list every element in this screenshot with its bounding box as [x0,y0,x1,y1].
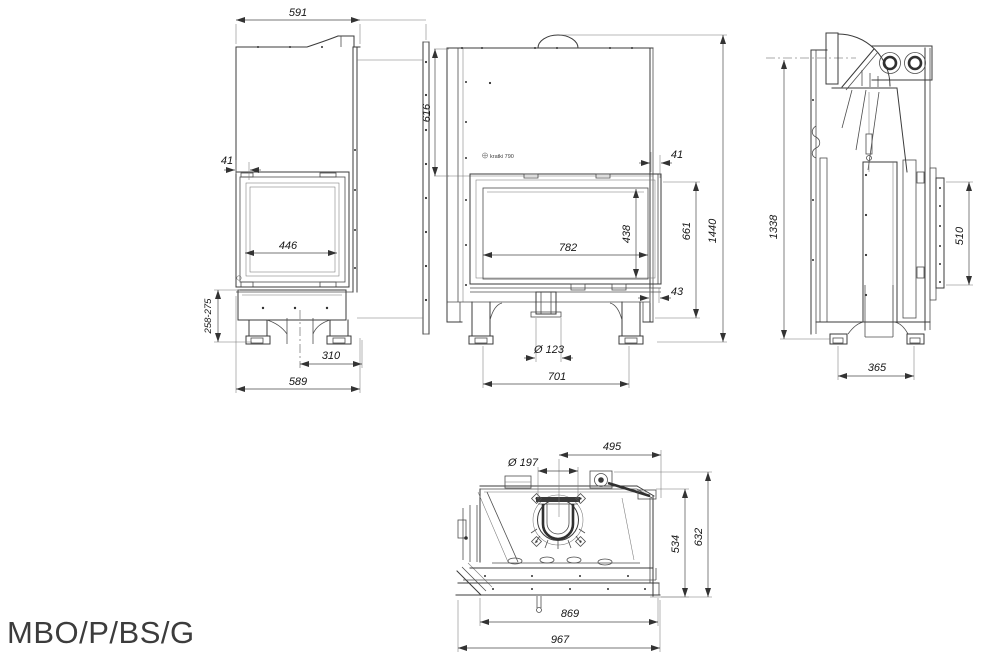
door-edge [930,168,936,300]
view-right-side: 1338 510 365 [766,33,973,380]
dim-left-depth-top: 591 [289,7,307,19]
flue-outlet [531,459,585,549]
view-left-side: 591 41 446 258-275 310 589 [203,7,429,393]
drawing-canvas: 591 41 446 258-275 310 589 [0,0,999,666]
dim-base-height-range: 258-275 [203,298,214,335]
dim-total-height: 1440 [707,218,719,243]
door-handle-pin [537,596,542,613]
dim-total-width: 967 [551,634,570,646]
view-front: kratki 790 [421,35,727,388]
dim-air-inlet-diameter: Ø 123 [533,344,565,356]
model-title: MBO/P/BS/G [7,615,195,651]
dim-flue-offset: 495 [603,441,622,453]
dim-total-depth: 632 [693,528,705,546]
dim-left-frame-offset: 41 [221,155,233,167]
top-view-dimensions: 495 Ø 197 534 632 869 967 [458,441,712,652]
view-top: 495 Ø 197 534 632 869 967 [456,441,712,652]
flue-dome [538,35,578,48]
dim-body-width: 869 [561,608,579,620]
dim-handle-bar-length: 510 [954,226,966,245]
top-view-body [456,459,660,613]
dim-hood-height: 616 [421,103,433,122]
dim-flue-axis-height: 1338 [768,214,780,239]
left-view-body [236,36,429,334]
damper-lever [590,471,656,499]
dim-inlet-offset: 310 [322,350,341,362]
side-band-latch [458,505,470,562]
technical-drawing: 591 41 446 258-275 310 589 [0,0,999,666]
damper-cable [866,92,872,172]
dim-left-depth-bottom: 589 [289,376,307,388]
air-inlet-pipe [531,292,561,317]
front-view-dimensions: 616 41 782 438 661 1440 43 [421,35,727,388]
dim-flue-diameter: Ø 197 [507,457,539,469]
dim-feet-spacing-right: 365 [868,362,887,374]
right-view-body [766,33,944,334]
dim-glass-width: 782 [559,242,577,254]
convection-outlets [872,46,932,80]
handle-bar [936,178,944,288]
side-glass-door [236,172,353,292]
brand-logo: kratki 790 [482,153,513,160]
dim-glass-height: 438 [621,224,633,243]
brand-logo-label: kratki 790 [490,154,514,160]
right-view-dimensions: 1338 510 365 [768,60,973,380]
dim-feet-spacing-front: 701 [548,371,566,383]
dim-body-depth: 534 [670,535,682,553]
right-view-base [816,285,930,344]
dim-side-glass-width: 446 [279,240,298,252]
front-base [447,292,653,344]
dim-frame-side: 43 [671,286,684,298]
dim-door-height: 661 [681,222,693,240]
dim-front-frame-offset: 41 [671,149,683,161]
flue-collar [826,33,838,84]
